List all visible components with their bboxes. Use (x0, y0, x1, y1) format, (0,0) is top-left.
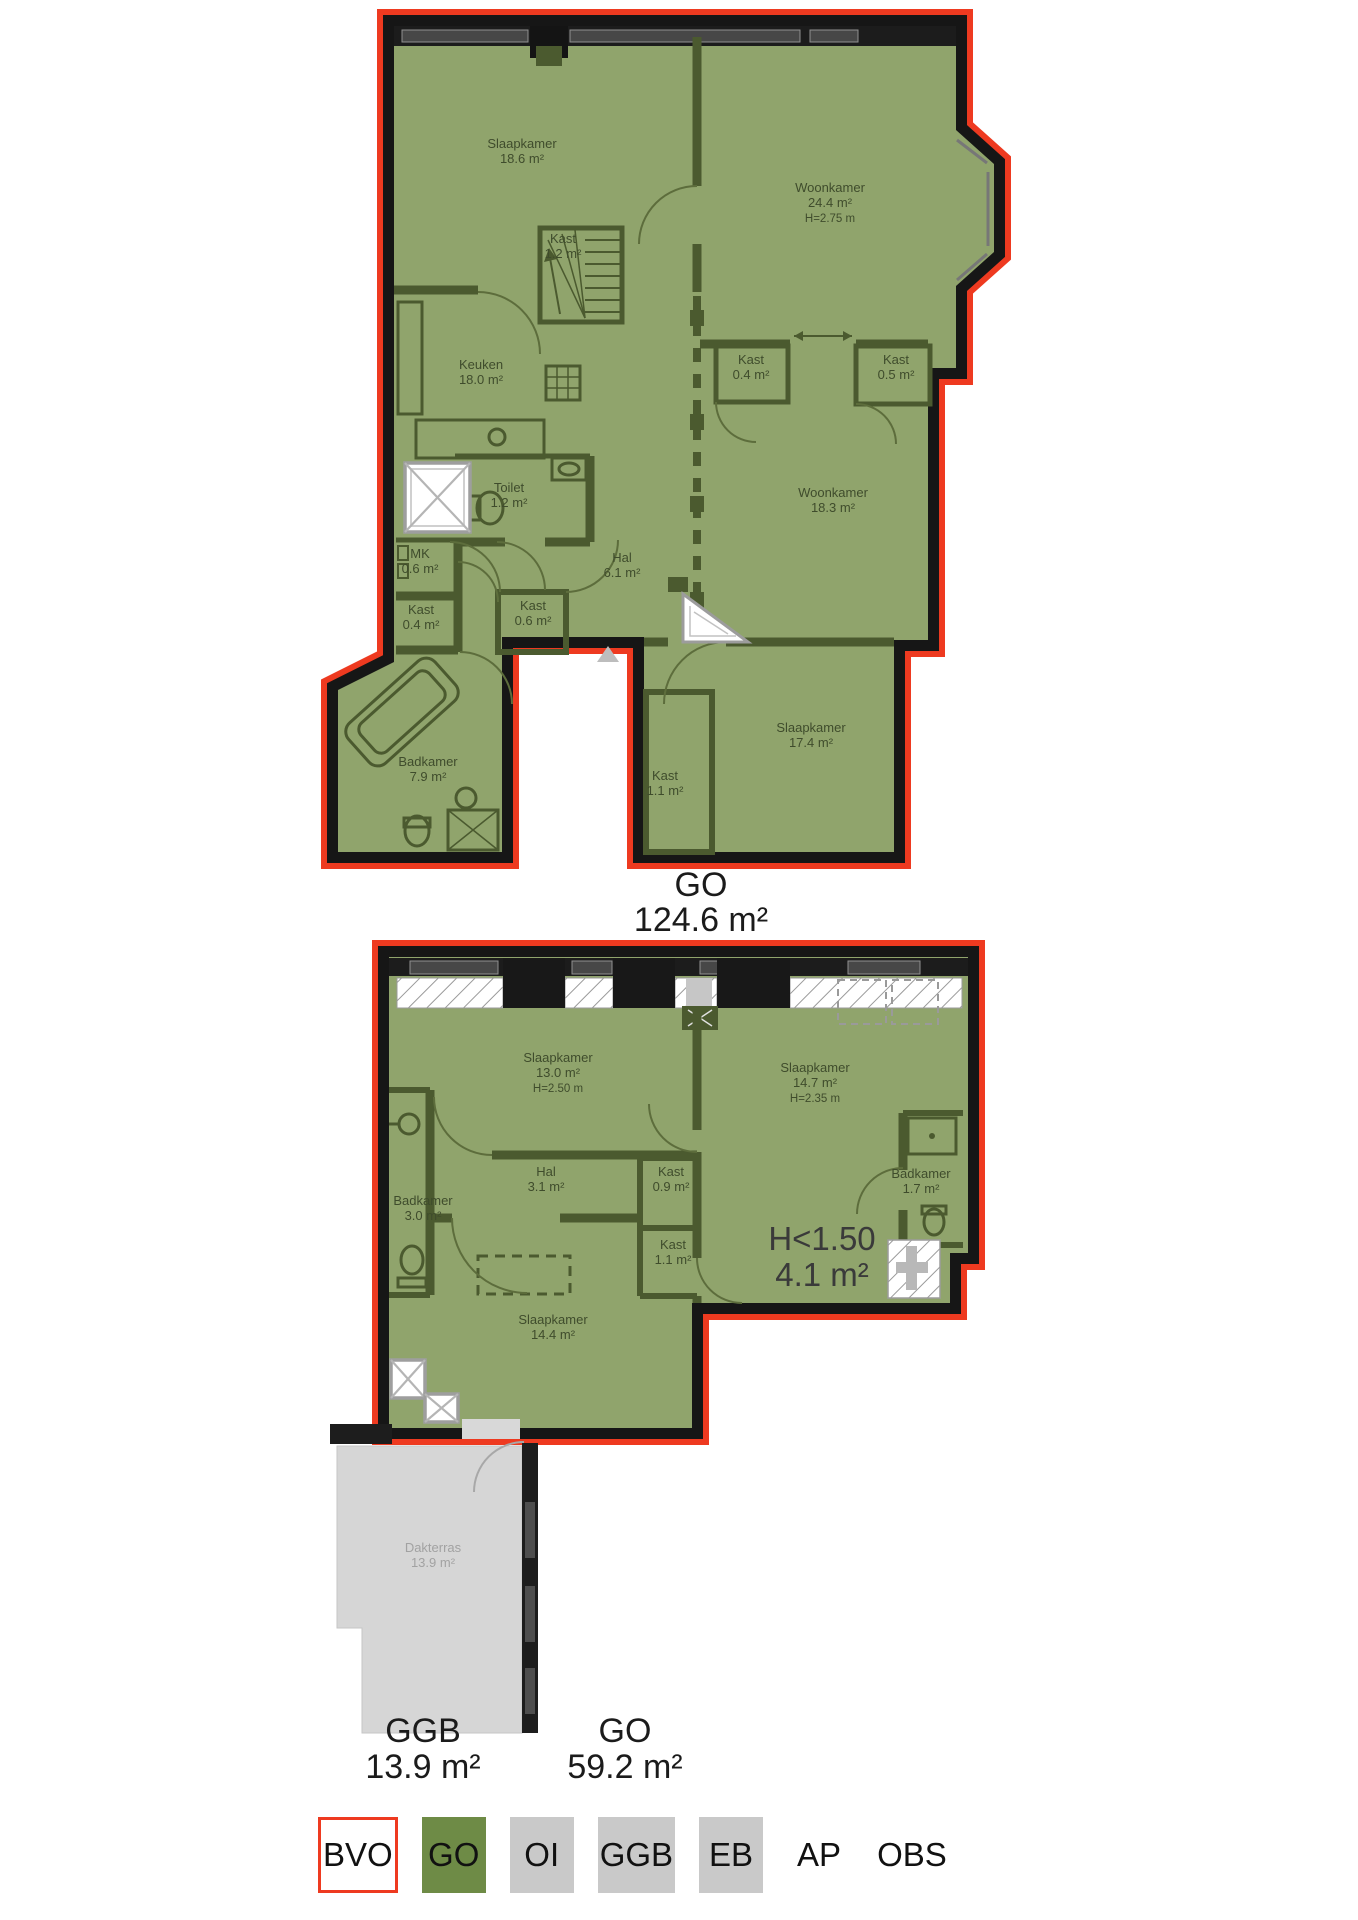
upper-area-code: GO (675, 866, 728, 904)
lower-floorplan (389, 957, 968, 1439)
lower-area-value: 59.2 m² (567, 1748, 682, 1786)
chimney-hatch (888, 1240, 940, 1298)
ggb-value: 13.9 m² (365, 1748, 480, 1786)
low-height-line2: 4.1 m² (775, 1256, 869, 1293)
room-label: Keuken18.0 m² (459, 357, 504, 387)
duct (686, 978, 712, 1008)
legend-item-ap: AP (787, 1817, 851, 1893)
low-height-line1: H<1.50 (768, 1220, 875, 1257)
legend-item-obs: OBS (875, 1817, 949, 1893)
legend-item-go: GO (422, 1817, 486, 1893)
lower-area-code: GO (599, 1712, 652, 1750)
legend-item-eb: EB (699, 1817, 763, 1893)
legend: BVO GO OI GGB EB AP OBS (318, 1817, 949, 1893)
ggb-code: GGB (385, 1712, 461, 1750)
upper-shaft (405, 463, 470, 532)
floorplan-drawing: Slaapkamer18.6 m²Woonkamer24.4 m²H=2.75 … (0, 0, 1358, 1920)
legend-item-ggb: GGB (598, 1817, 675, 1893)
room-label: Toilet1.2 m² (491, 480, 529, 510)
terrace-door-threshold (462, 1419, 520, 1439)
legend-item-bvo: BVO (318, 1817, 398, 1893)
upper-area-value: 124.6 m² (634, 901, 768, 939)
room-label: Dakterras13.9 m² (405, 1540, 462, 1570)
roof-terrace (330, 1424, 538, 1733)
legend-item-oi: OI (510, 1817, 574, 1893)
upper-floorplan (338, 26, 994, 852)
